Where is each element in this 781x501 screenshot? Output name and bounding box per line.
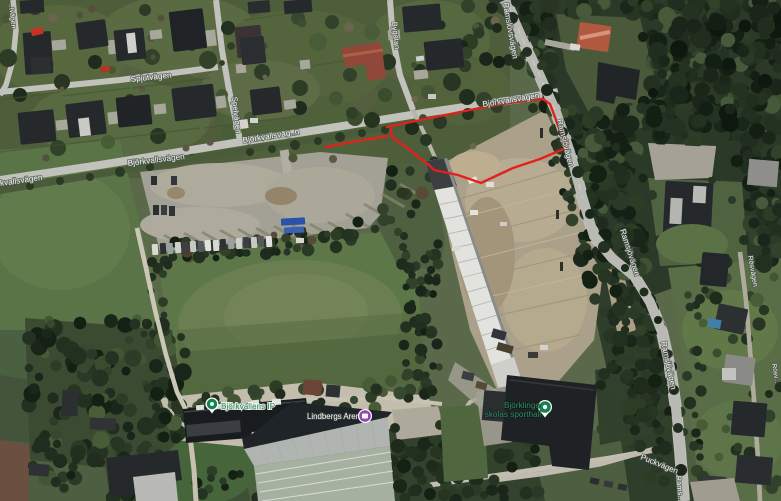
svg-text:Björkvallens IP: Björkvallens IP bbox=[221, 402, 276, 411]
svg-text:Björklinge: Björklinge bbox=[504, 401, 540, 410]
svg-text:skolas sporthall: skolas sporthall bbox=[485, 410, 542, 419]
svg-text:Lindbergs Arena: Lindbergs Arena bbox=[307, 412, 365, 421]
